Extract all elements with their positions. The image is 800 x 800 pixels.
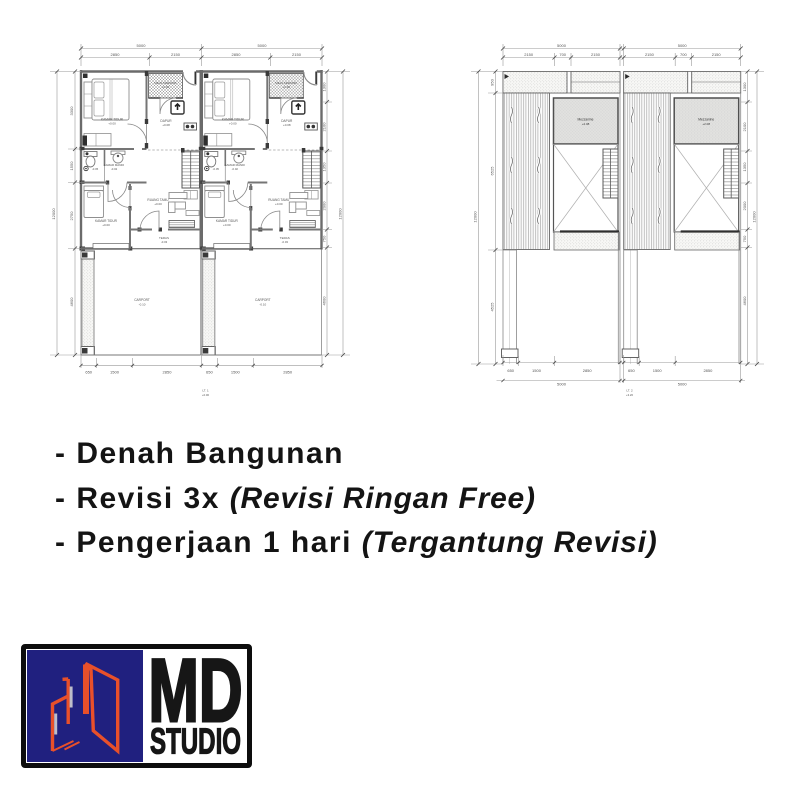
svg-text:+0.90: +0.90 (162, 85, 170, 89)
svg-text:Mezzanine: Mezzanine (578, 118, 594, 122)
svg-text:650: 650 (85, 370, 92, 375)
svg-text:5000: 5000 (678, 382, 688, 387)
svg-text:STUDIO: STUDIO (150, 721, 241, 762)
svg-text:2100: 2100 (322, 122, 327, 132)
svg-text:1500: 1500 (532, 368, 542, 373)
svg-text:1350: 1350 (322, 162, 327, 172)
svg-text:4600: 4600 (742, 296, 747, 306)
svg-text:650: 650 (628, 368, 635, 373)
svg-text:2850: 2850 (232, 52, 242, 57)
svg-text:5000: 5000 (258, 43, 268, 48)
svg-text:-0.05: -0.05 (92, 167, 99, 171)
svg-text:2150: 2150 (171, 52, 181, 57)
svg-text:+0.00: +0.00 (108, 122, 116, 126)
svg-text:950: 950 (490, 78, 495, 85)
svg-text:2850: 2850 (163, 370, 173, 375)
svg-text:750: 750 (322, 235, 327, 242)
svg-text:650: 650 (507, 368, 514, 373)
svg-text:1500: 1500 (231, 370, 241, 375)
svg-text:2850: 2850 (703, 368, 713, 373)
svg-text:2850: 2850 (283, 370, 293, 375)
svg-text:4600: 4600 (322, 296, 327, 306)
svg-text:2150: 2150 (591, 52, 601, 57)
svg-text:+0.00: +0.00 (102, 223, 110, 227)
svg-text:1500: 1500 (653, 368, 663, 373)
svg-text:6525: 6525 (490, 166, 495, 176)
svg-text:1300: 1300 (742, 82, 747, 92)
svg-text:CARPORT: CARPORT (134, 298, 150, 302)
svg-text:1500: 1500 (110, 370, 120, 375)
svg-text:4525: 4525 (490, 302, 495, 312)
svg-text:12000: 12000 (473, 211, 478, 223)
svg-text:1350: 1350 (742, 162, 747, 172)
svg-text:+0.08: +0.08 (162, 123, 170, 127)
svg-text:5000: 5000 (678, 43, 688, 48)
svg-text:12000: 12000 (338, 208, 343, 220)
svg-text:3300: 3300 (69, 106, 74, 116)
svg-text:+2.08: +2.08 (582, 122, 590, 126)
svg-text:5000: 5000 (557, 43, 567, 48)
svg-text:2750: 2750 (69, 211, 74, 221)
svg-text:5000: 5000 (137, 43, 147, 48)
svg-text:2850: 2850 (583, 368, 593, 373)
svg-text:-0.10: -0.10 (139, 303, 146, 307)
svg-text:4600: 4600 (69, 297, 74, 307)
svg-text:-0.03: -0.03 (161, 240, 168, 244)
svg-text:+3.20: +3.20 (626, 393, 634, 397)
svg-text:2150: 2150 (524, 52, 534, 57)
svg-text:700: 700 (680, 52, 687, 57)
svg-text:700: 700 (559, 52, 566, 57)
svg-text:-0.02: -0.02 (111, 167, 118, 171)
svg-text:12000: 12000 (51, 208, 56, 220)
svg-text:LT. 1: LT. 1 (202, 389, 209, 393)
svg-text:2850: 2850 (111, 52, 121, 57)
svg-text:5000: 5000 (557, 382, 567, 387)
svg-text:+0.00: +0.00 (154, 202, 162, 206)
svg-text:2150: 2150 (645, 52, 655, 57)
svg-text:1550: 1550 (69, 161, 74, 171)
svg-text:1300: 1300 (322, 82, 327, 92)
svg-text:2000: 2000 (742, 201, 747, 211)
svg-text:2100: 2100 (742, 122, 747, 132)
svg-text:2000: 2000 (322, 201, 327, 211)
svg-text:650: 650 (206, 370, 213, 375)
svg-text:2150: 2150 (712, 52, 722, 57)
svg-text:12000: 12000 (752, 211, 757, 223)
svg-text:LT. 2: LT. 2 (626, 389, 633, 393)
svg-text:2150: 2150 (292, 52, 302, 57)
svg-text:750: 750 (742, 235, 747, 242)
svg-text:+0.00: +0.00 (202, 393, 210, 397)
